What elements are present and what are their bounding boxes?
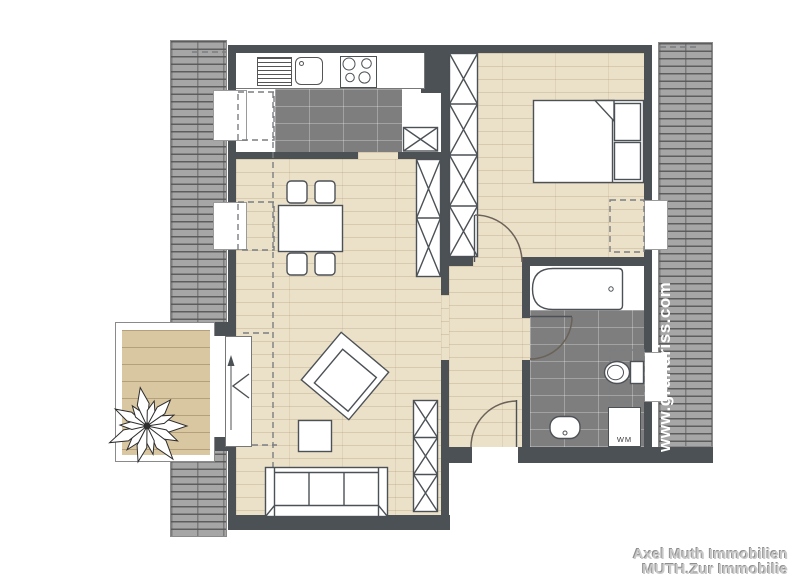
wall-bath-left-b xyxy=(522,360,530,449)
kitchen-tile-floor xyxy=(275,89,402,152)
bedroom-door-opening xyxy=(473,257,522,266)
dormer-window-kitchen xyxy=(213,90,247,141)
balcony-deck xyxy=(122,330,210,455)
branding-block: Axel Muth Immobilien MUTH.Zur Immobilie xyxy=(633,547,788,577)
wall-hall-living xyxy=(441,360,449,515)
washing-machine: WM xyxy=(608,407,641,447)
wall-kitchen-bedroom xyxy=(441,53,449,295)
bath-door-opening xyxy=(522,318,530,360)
wall-living-bottom xyxy=(228,515,450,530)
dormer-window-living xyxy=(213,202,247,250)
wall-kitchen-living-a xyxy=(236,152,358,159)
balcony-threshold xyxy=(210,336,225,437)
entrance-door-opening xyxy=(472,447,518,463)
kitchen-counter xyxy=(236,53,425,89)
kitchen-living-opening xyxy=(358,152,398,159)
bath-tub-zone xyxy=(530,266,644,310)
bedroom-floor xyxy=(449,53,644,257)
wall-bath-left-a xyxy=(522,266,530,318)
floor-plan-page: { "watermark": { "text": "www.grundriss.… xyxy=(0,0,800,584)
branding-line-2: MUTH.Zur Immobilie xyxy=(633,562,788,577)
wall-kitchen-living-b xyxy=(398,152,441,159)
kitchen-sink-icon xyxy=(295,57,323,85)
wall-bedroom-bottom-a xyxy=(449,257,473,266)
branding-line-1: Axel Muth Immobilien xyxy=(633,547,788,562)
drainer-icon xyxy=(257,57,292,86)
wall-bottom-hall-b xyxy=(518,447,713,463)
living-hall-opening xyxy=(441,295,449,360)
wall-bedroom-bottom-b xyxy=(522,257,644,266)
living-room-floor xyxy=(236,159,441,515)
hall-floor xyxy=(449,266,522,447)
wall-bottom-hall-a xyxy=(449,447,472,463)
watermark-grundriss: www.grundriss.com xyxy=(653,302,677,452)
dormer-window-bedroom xyxy=(644,200,668,250)
wall-top xyxy=(228,45,652,53)
balcony-door xyxy=(225,336,252,447)
washing-machine-label: WM xyxy=(609,435,640,444)
